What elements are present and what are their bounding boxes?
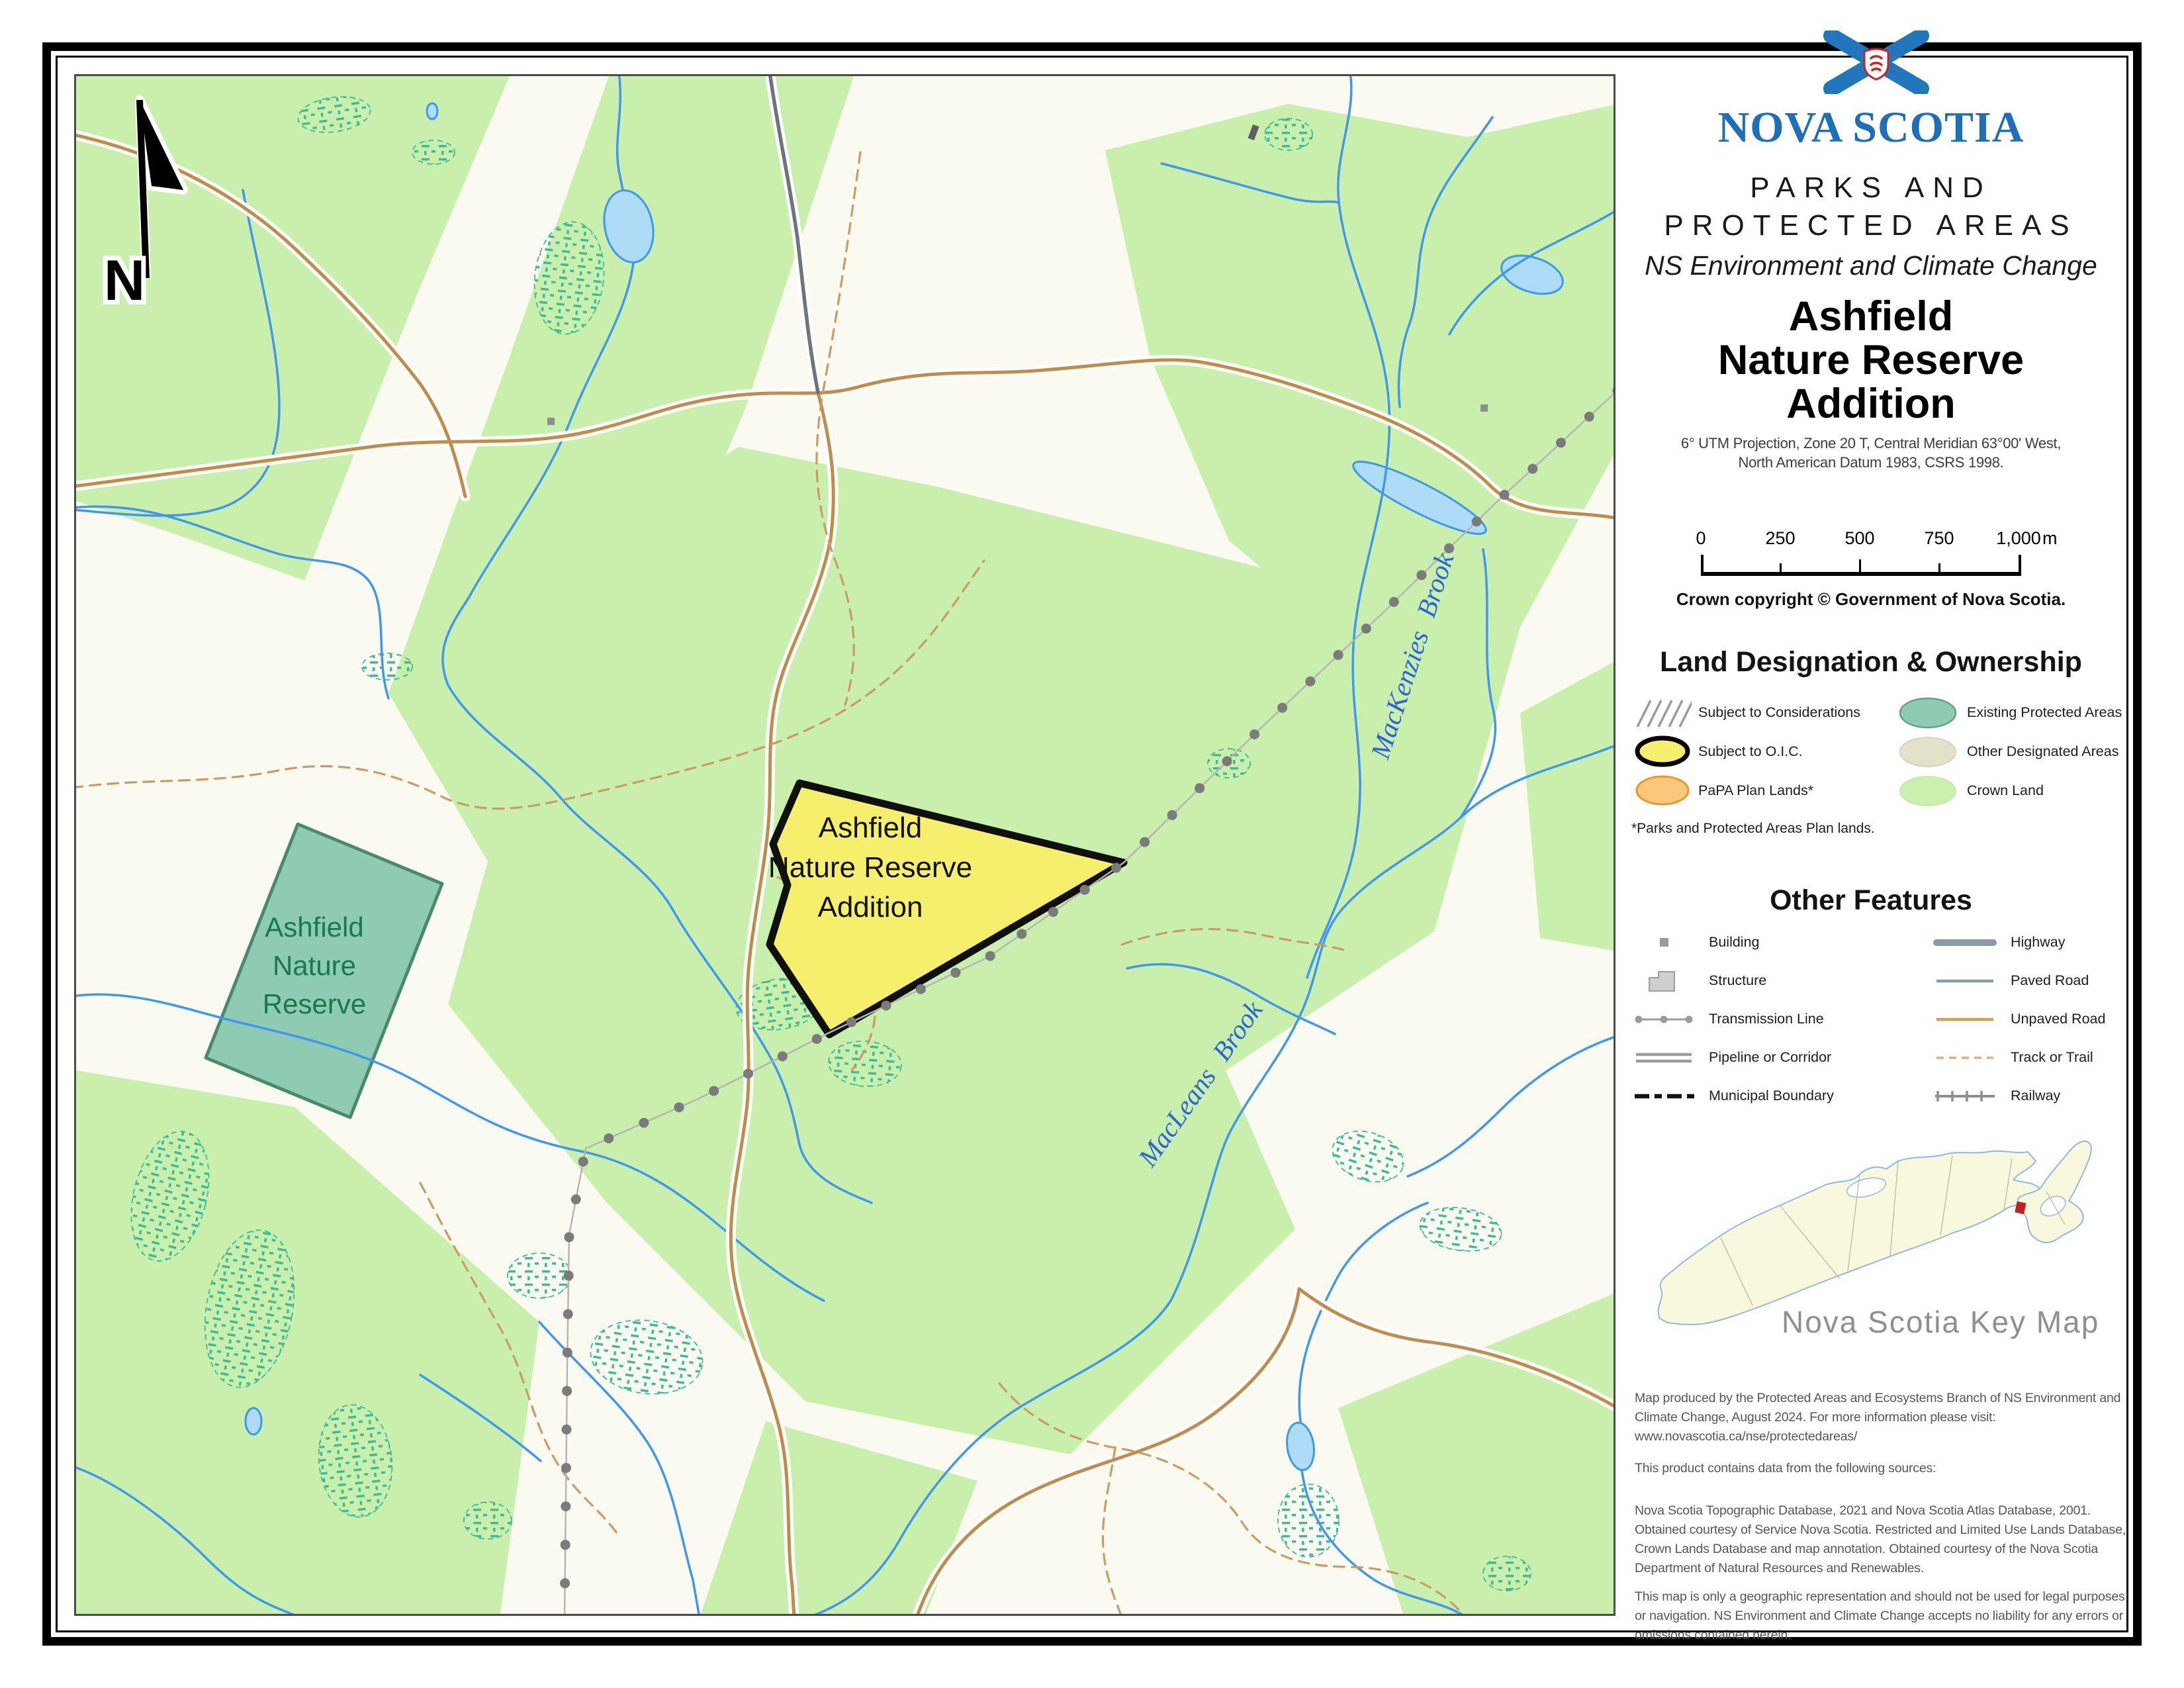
legend-item-label: Building	[1709, 934, 1760, 951]
svg-text:Reserve: Reserve	[263, 988, 366, 1019]
legend-item-label: Highway	[2011, 934, 2065, 951]
keymap-label: Nova Scotia Key Map	[1782, 1304, 2099, 1340]
legend-item-label: Track or Trail	[2011, 1049, 2093, 1066]
program-title-line2: PROTECTED AREAS	[1614, 207, 2128, 244]
credit-paragraph: Map produced by the Protected Areas and …	[1635, 1389, 2128, 1446]
scale-tick-label: 0	[1696, 528, 1706, 549]
unpaved-road-icon	[1933, 1006, 1997, 1033]
scale-tick-label: 500	[1844, 528, 1874, 549]
track-trail-icon	[1933, 1045, 1997, 1071]
legend-footnote: *Parks and Protected Areas Plan lands.	[1631, 821, 1875, 837]
reserve-label: Ashfield Nature Reserve	[263, 912, 366, 1019]
pipeline-icon	[1633, 1045, 1694, 1071]
logo-wordmark: NOVA SCOTIA	[1614, 103, 2128, 153]
scale-tick-label: 750	[1924, 528, 1954, 549]
railway-icon	[1933, 1083, 1997, 1109]
legend-item-label: Pipeline or Corridor	[1709, 1049, 1831, 1066]
legend-item-label: Structure	[1709, 972, 1766, 989]
svg-text:Nature: Nature	[273, 950, 356, 981]
designated-ellipse-icon	[1897, 735, 1959, 769]
legend-item-label: Subject to Considerations	[1698, 704, 1860, 721]
legend-land-title: Land Designation & Ownership	[1614, 646, 2128, 679]
svg-text:Nature Reserve: Nature Reserve	[768, 851, 972, 884]
legend-item-label: Transmission Line	[1709, 1011, 1824, 1027]
copyright-note: Crown copyright © Government of Nova Sco…	[1614, 589, 2128, 610]
nova-scotia-flag-icon	[1823, 30, 1929, 94]
scale-tick-label: 250	[1765, 528, 1795, 549]
legend-item-label: Railway	[2011, 1088, 2060, 1104]
scale-tick-label: 1,000	[1996, 528, 2041, 549]
oic-ellipse-icon	[1633, 734, 1692, 769]
paved-road-icon	[1933, 968, 1997, 994]
legend-item-label: Crown Land	[1967, 782, 2044, 799]
scale-unit: m	[2042, 528, 2058, 549]
svg-text:Ashfield: Ashfield	[819, 812, 923, 844]
map-area: MacKenzies Brook MacLeans Brook Ashfield…	[74, 74, 1615, 1616]
structure-icon	[1633, 968, 1694, 994]
papa-ellipse-icon	[1633, 773, 1692, 808]
legend-item-label: Municipal Boundary	[1709, 1088, 1834, 1104]
credit-paragraph: Nova Scotia Topographic Database, 2021 a…	[1635, 1501, 2128, 1578]
building-icon	[1633, 929, 1694, 956]
projection-note-line1: 6° UTM Projection, Zone 20 T, Central Me…	[1614, 434, 2128, 453]
scale-bar: 0 250 500 750 1,000 m	[1701, 528, 2071, 575]
projection-note-line2: North American Datum 1983, CSRS 1998.	[1614, 453, 2128, 472]
protected-ellipse-icon	[1897, 696, 1959, 729]
legend-item-label: Subject to O.I.C.	[1698, 743, 1803, 760]
crown-ellipse-icon	[1897, 774, 1959, 808]
highway-icon	[1933, 929, 1997, 956]
map-title-line2: Nature Reserve	[1614, 338, 2128, 382]
map-sheet: MacKenzies Brook MacLeans Brook Ashfield…	[0, 0, 2184, 1688]
department-name: NS Environment and Climate Change	[1614, 250, 2128, 281]
svg-text:N: N	[104, 249, 145, 312]
program-title-line1: PARKS AND	[1614, 169, 2128, 207]
svg-text:Ashfield: Ashfield	[265, 912, 363, 943]
legend-item-label: Other Designated Areas	[1967, 743, 2118, 760]
map-title-line1: Ashfield	[1614, 295, 2128, 338]
credit-paragraph: This product contains data from the foll…	[1635, 1459, 2128, 1478]
map-canvas: MacKenzies Brook MacLeans Brook Ashfield…	[76, 76, 1614, 1614]
transmission-line-icon	[1633, 1006, 1694, 1033]
credit-paragraph: This map is only a geographic representa…	[1635, 1587, 2128, 1645]
legend-item-label: PaPA Plan Lands*	[1698, 782, 1813, 799]
legend-item-label: Paved Road	[2011, 972, 2089, 989]
svg-text:Addition: Addition	[817, 891, 923, 923]
legend-item-label: Unpaved Road	[2011, 1011, 2105, 1027]
hatch-lines-icon	[1633, 695, 1692, 731]
map-title-line3: Addition	[1614, 382, 2128, 426]
legend-item-label: Existing Protected Areas	[1967, 704, 2122, 721]
municipal-boundary-icon	[1633, 1083, 1694, 1109]
legend-features-title: Other Features	[1614, 884, 2128, 917]
